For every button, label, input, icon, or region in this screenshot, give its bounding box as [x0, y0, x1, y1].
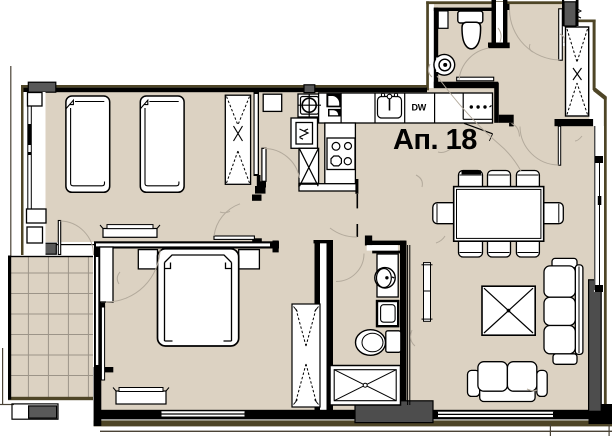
svg-text:DW: DW — [412, 103, 427, 113]
svg-text:Ап. 18: Ап. 18 — [393, 124, 477, 156]
